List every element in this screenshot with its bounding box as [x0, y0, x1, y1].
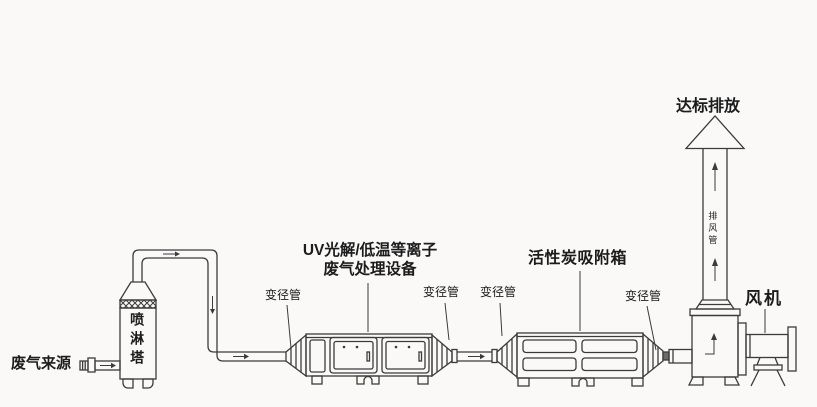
uv-equipment-title-line1: UV光解/低温等离子: [290, 242, 450, 261]
reducer-cone-1: [286, 335, 306, 376]
tower-foot-left: [123, 379, 133, 388]
flow-arrow-duct-down: [210, 296, 215, 314]
emission-arrowhead: [686, 116, 744, 149]
flow-arrow-stack-upper: [712, 162, 718, 191]
fan-foot-right: [725, 377, 739, 385]
fan-motor: [746, 335, 788, 358]
reducer-label-3: 变径管: [480, 286, 516, 300]
flow-arrow-fan: [705, 333, 717, 354]
reducer-cone-3: [492, 334, 517, 377]
fan-assembly: [669, 300, 796, 386]
reducer-cone-4: [643, 334, 669, 377]
fan-label: 风机: [745, 289, 783, 309]
reducer-cone-2: [432, 335, 457, 376]
flow-arrow-inlet: [100, 363, 116, 368]
waste-gas-source-label: 废气来源: [11, 355, 71, 372]
flow-arrow-duct-bottom: [233, 354, 249, 359]
emission-label: 达标排放: [676, 98, 740, 116]
diagram-linework: [0, 0, 817, 407]
pointer-line-reducer-1: [287, 305, 291, 348]
exhaust-stack: [686, 116, 744, 300]
reducer-label-2: 变径管: [423, 286, 459, 300]
fan-stand: [751, 358, 785, 387]
flow-arrow-stack-lower: [712, 258, 718, 281]
carbon-box-body: [517, 333, 643, 386]
uv-equipment-body: [306, 334, 432, 384]
flow-arrow-duct-top: [163, 252, 180, 257]
uv-equipment-title-line2: 废气处理设备: [290, 261, 450, 280]
uv-door-1: [330, 338, 377, 374]
flow-arrow-pipe-2: [468, 354, 485, 359]
uv-door-2: [382, 338, 429, 374]
fan-foot-left: [689, 377, 703, 385]
carbon-box-title: 活性炭吸附箱: [528, 250, 627, 268]
spray-tower-label: 喷淋塔: [129, 312, 145, 369]
tower-foot-right: [143, 379, 153, 388]
reducer-label-4: 变径管: [625, 290, 661, 304]
uv-equipment-title: UV光解/低温等离子 废气处理设备: [290, 242, 450, 279]
pointer-line-reducer-2: [445, 303, 449, 340]
pointer-line-reducer-3: [500, 303, 502, 336]
reducer-label-1: 变径管: [265, 289, 301, 303]
exhaust-pipe-label: 排风管: [707, 211, 717, 247]
process-flow-diagram: 废气来源 喷淋塔 UV光解/低温等离子 废气处理设备 变径管 变径管 变径管 活…: [0, 0, 817, 407]
